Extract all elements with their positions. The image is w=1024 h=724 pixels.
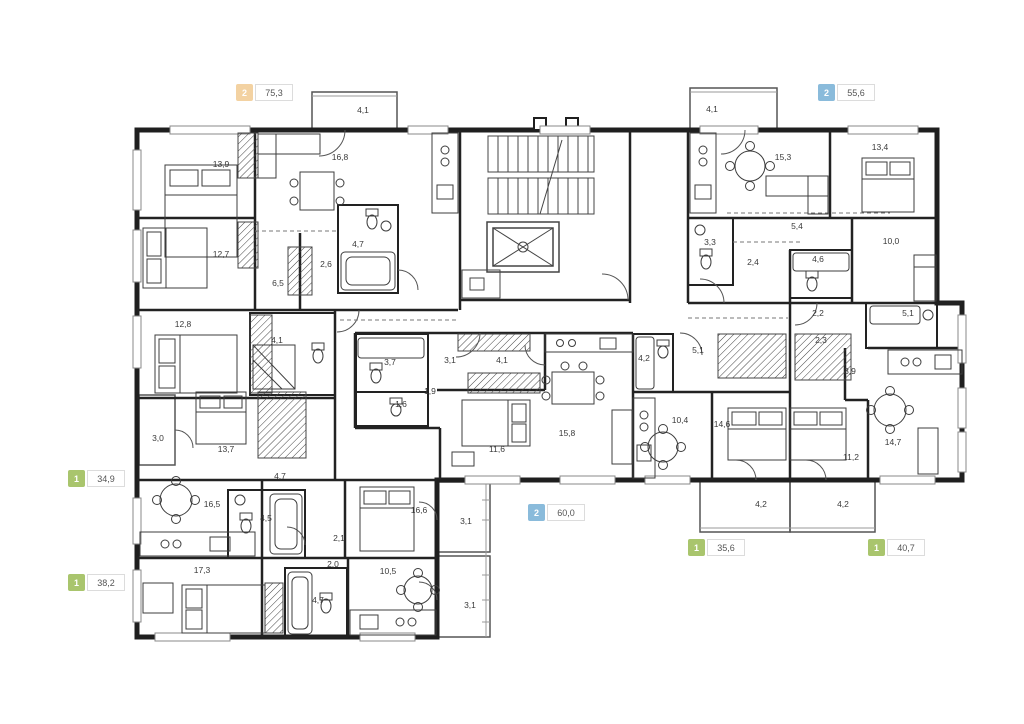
- room-area-label: 2,2: [812, 308, 824, 318]
- room-area-label: 2,6: [320, 259, 332, 269]
- bed: [862, 158, 914, 212]
- apartment-area: 55,6: [837, 84, 875, 101]
- room-count: 1: [868, 539, 885, 556]
- bathtub: [358, 338, 424, 358]
- sink: [923, 310, 933, 320]
- sofa: [766, 176, 828, 214]
- apartment-badge[interactable]: 275,3: [236, 84, 293, 101]
- kitchen-counter: [545, 334, 633, 352]
- floor-plan: 4,113,916,812,74,72,66,54,115,313,43,35,…: [0, 0, 1024, 724]
- room-area-label: 12,8: [175, 319, 192, 329]
- dining-table: [641, 425, 686, 470]
- sofa: [612, 410, 632, 464]
- apartment-area: 40,7: [887, 539, 925, 556]
- room-area-label: 14,6: [714, 419, 731, 429]
- apartment-badge[interactable]: 138,2: [68, 574, 125, 591]
- room-area-label: 5,4: [791, 221, 803, 231]
- room-area-label: 4,2: [837, 499, 849, 509]
- toilet: [240, 513, 252, 533]
- room-area-label: 4,1: [271, 335, 283, 345]
- toilet: [370, 363, 382, 383]
- bed: [165, 165, 237, 257]
- room-count: 1: [68, 574, 85, 591]
- sink: [695, 225, 705, 235]
- room-area-label: 3,3: [704, 237, 716, 247]
- kitchen-counter: [690, 133, 716, 213]
- room-count: 2: [528, 504, 545, 521]
- room-area-label: 5,1: [692, 345, 704, 355]
- bathtub: [270, 494, 302, 554]
- room-area-label: 4,2: [638, 353, 650, 363]
- room-area-label: 3,1: [444, 355, 456, 365]
- room-area-label: 4,5: [260, 513, 272, 523]
- sofa: [918, 428, 938, 474]
- room-area-label: 2,0: [327, 559, 339, 569]
- room-area-label: 13,7: [218, 444, 235, 454]
- room-count: 1: [688, 539, 705, 556]
- room-area-label: 13,4: [872, 142, 889, 152]
- room-area-label: 4,1: [706, 104, 718, 114]
- bed: [462, 400, 530, 446]
- bed: [790, 408, 846, 460]
- room-area-label: 16,5: [204, 499, 221, 509]
- kitchen-counter: [140, 532, 255, 556]
- kitchen-counter: [350, 610, 436, 635]
- toilet: [806, 271, 818, 291]
- room-area-label: 13,9: [213, 159, 230, 169]
- dining-table: [397, 569, 440, 612]
- room-area-label: 3,0: [152, 433, 164, 443]
- room-area-label: 15,3: [775, 152, 792, 162]
- sink: [235, 495, 245, 505]
- apartment-badge[interactable]: 260,0: [528, 504, 585, 521]
- bathtub: [288, 572, 312, 634]
- room-area-label: 2,3: [815, 335, 827, 345]
- room-area-label: 14,7: [885, 437, 902, 447]
- desk: [452, 452, 474, 466]
- bathtub: [636, 337, 654, 389]
- room-area-label: 10,5: [380, 566, 397, 576]
- toilet: [657, 340, 669, 358]
- room-area-label: 4,2: [755, 499, 767, 509]
- bathtub: [341, 252, 395, 290]
- kitchen-counter: [633, 398, 655, 478]
- dining-table: [726, 142, 775, 191]
- dining-table: [542, 362, 604, 404]
- room-area-label: 4,7: [274, 471, 286, 481]
- room-area-label: 3,7: [384, 357, 396, 367]
- room-area-label: 2,1: [333, 533, 345, 543]
- room-area-label: 4,7: [312, 595, 324, 605]
- bed: [182, 585, 265, 633]
- room-area-label: 11,2: [843, 452, 859, 462]
- room-area-label: 2,4: [747, 257, 759, 267]
- bed: [155, 335, 237, 393]
- room-count: 2: [236, 84, 253, 101]
- apartment-badge[interactable]: 135,6: [688, 539, 745, 556]
- bed: [728, 408, 786, 460]
- room-area-label: 3,1: [460, 516, 472, 526]
- room-area-label: 4,6: [812, 254, 824, 264]
- room-area-label: 1,9: [424, 386, 436, 396]
- room-area-label: 16,6: [411, 505, 428, 515]
- room-area-label: 11,6: [489, 444, 505, 454]
- apartment-area: 35,6: [707, 539, 745, 556]
- room-area-label: 4,1: [496, 355, 508, 365]
- room-area-label: 5,1: [902, 308, 914, 318]
- room-area-label: 10,4: [672, 415, 689, 425]
- room-area-label: 4,1: [357, 105, 369, 115]
- apartment-badge[interactable]: 255,6: [818, 84, 875, 101]
- apartment-area: 75,3: [255, 84, 293, 101]
- room-area-label: 10,0: [883, 236, 900, 246]
- room-area-label: 3,1: [464, 600, 476, 610]
- elevator: [462, 222, 559, 298]
- toilet: [366, 209, 378, 229]
- room-area-label: 4,7: [352, 239, 364, 249]
- dining-table: [867, 387, 914, 434]
- desk: [143, 583, 173, 613]
- bed: [914, 255, 936, 301]
- kitchen-counter: [432, 133, 458, 213]
- room-area-label: 15,8: [559, 428, 576, 438]
- toilet: [700, 249, 712, 269]
- apartment-badge[interactable]: 134,9: [68, 470, 125, 487]
- bed: [143, 228, 207, 288]
- room-count: 2: [818, 84, 835, 101]
- apartment-area: 38,2: [87, 574, 125, 591]
- dining-table: [153, 477, 200, 524]
- room-area-label: 3,9: [844, 366, 856, 376]
- apartment-badge[interactable]: 140,7: [868, 539, 925, 556]
- toilet: [312, 343, 324, 363]
- room-area-label: 17,3: [194, 565, 211, 575]
- room-area-label: 16,8: [332, 152, 349, 162]
- room-area-label: 12,7: [213, 249, 230, 259]
- room-count: 1: [68, 470, 85, 487]
- bed: [360, 487, 414, 551]
- floorplan-svg: 4,113,916,812,74,72,66,54,115,313,43,35,…: [0, 0, 1024, 724]
- apartment-area: 34,9: [87, 470, 125, 487]
- apartment-area: 60,0: [547, 504, 585, 521]
- stairs: [488, 136, 594, 214]
- bed: [196, 392, 246, 444]
- sink: [381, 221, 391, 231]
- room-area-label: 1,6: [395, 399, 407, 409]
- kitchen-counter: [888, 350, 962, 374]
- dining-table: [290, 172, 344, 210]
- room-area-label: 6,5: [272, 278, 284, 288]
- sofa: [258, 134, 320, 178]
